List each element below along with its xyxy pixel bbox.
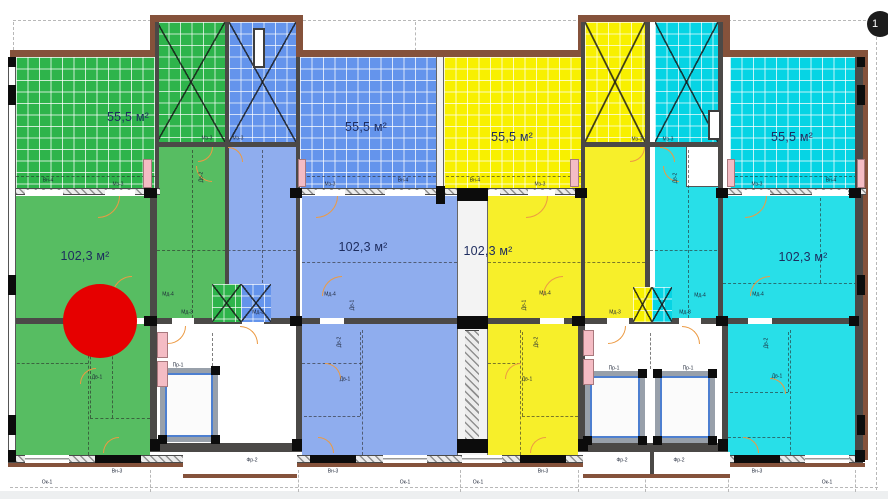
partition-line	[578, 470, 579, 492]
partition-line	[304, 416, 360, 417]
annotation-label: Вн-4	[470, 179, 481, 184]
partition-line	[522, 416, 578, 417]
partition-line	[460, 470, 461, 492]
annotation-label: Пр-1	[609, 367, 620, 372]
annotation-label: Мз-3	[233, 137, 244, 142]
partition-line	[855, 470, 856, 492]
terrace-area-label-green: 55,5 м²	[107, 110, 149, 124]
pink-window	[143, 159, 152, 188]
pink-window	[727, 159, 735, 187]
apartment-area-label-cyan: 102,3 м²	[778, 250, 827, 264]
pink-window	[857, 159, 865, 188]
elevator-corner-column	[638, 369, 647, 378]
partition-line	[788, 332, 789, 392]
exterior-wall	[8, 463, 865, 467]
wall	[296, 318, 302, 452]
column	[8, 85, 16, 105]
annotation-label: Фр-2	[673, 459, 684, 464]
annotation-label: Мз-3	[632, 138, 643, 143]
elevator-corner-column	[708, 436, 717, 445]
column	[290, 316, 302, 326]
annotation-label: Дв-1	[340, 378, 351, 383]
column	[734, 455, 780, 463]
balcony-door-frame	[708, 110, 721, 140]
exterior-wall	[863, 50, 868, 460]
elevator-corner-column	[211, 366, 220, 375]
selected-unit-marker[interactable]	[63, 284, 137, 358]
pink-window	[583, 359, 594, 385]
column	[144, 188, 157, 198]
column	[144, 316, 157, 326]
annotation-label: Вн-3	[112, 470, 123, 475]
wall	[855, 57, 863, 460]
terrace-x-yellow[interactable]	[585, 22, 645, 142]
column	[857, 85, 865, 105]
column	[520, 455, 566, 463]
elevator-corner-column	[583, 436, 592, 445]
annotation-label: Вн-4	[398, 179, 409, 184]
terrace-area-label-cyan: 55,5 м²	[771, 130, 813, 144]
wall	[650, 452, 654, 474]
column	[849, 316, 859, 326]
wall	[155, 22, 159, 188]
elevator-shaft	[585, 371, 645, 443]
terrace-yellow[interactable]	[444, 57, 581, 188]
door-arc	[240, 326, 258, 344]
terrace-area-label-yellow: 55,5 м²	[491, 130, 533, 144]
exterior-wall	[8, 57, 16, 460]
utility-room	[686, 145, 722, 187]
hatched-wall	[465, 330, 479, 440]
window-opening	[812, 190, 848, 196]
partition-line	[876, 22, 877, 490]
partition-line	[90, 418, 150, 419]
elevator-corner-column	[708, 369, 717, 378]
partition-line	[192, 150, 193, 318]
column	[849, 188, 861, 198]
window-opening	[320, 318, 344, 324]
terrace-area-label-blue: 55,5 м²	[345, 120, 387, 134]
column	[436, 186, 445, 204]
wall	[150, 443, 302, 452]
column	[572, 316, 585, 326]
partition-line	[13, 20, 876, 21]
elevator-corner-column	[638, 436, 647, 445]
annotation-label: Мз-3	[752, 183, 763, 188]
annotation-label: Дв-2	[338, 337, 343, 348]
column	[8, 415, 16, 435]
annotation-label: Мд-4	[162, 293, 174, 298]
annotation-label: Пр-1	[683, 367, 694, 372]
elevator-shaft	[160, 368, 218, 442]
annotation-label: Вн-3	[328, 470, 339, 475]
partition-line	[360, 332, 361, 416]
partition-line	[728, 437, 790, 438]
column	[855, 450, 865, 462]
wall	[585, 142, 722, 147]
door-arc	[608, 326, 626, 344]
bottom-margin	[0, 491, 888, 499]
window	[462, 455, 502, 463]
column	[290, 188, 302, 198]
annotation-label: Дв-1	[772, 375, 783, 380]
annotation-label: Дв-1	[523, 300, 528, 311]
window-opening	[607, 318, 629, 324]
annotation-label: Мд-4	[539, 292, 551, 297]
annotation-label: Фр-2	[616, 459, 627, 464]
wall	[581, 22, 585, 318]
partition-line	[302, 262, 457, 263]
annotation-label: Мд-3	[679, 311, 691, 316]
partition-line	[790, 330, 791, 455]
floor-plan: 55,5 м² 55,5 м² 55,5 м² 55,5 м² 102,3 м²…	[0, 0, 888, 499]
pink-window	[583, 330, 594, 356]
annotation-label: Ок-1	[400, 481, 411, 486]
window-opening	[385, 190, 425, 196]
exterior-wall	[296, 50, 585, 57]
partition-line	[446, 176, 581, 177]
column	[8, 275, 16, 295]
exterior-wall	[578, 15, 730, 22]
partition-line	[730, 176, 857, 177]
column	[8, 57, 16, 67]
elevator-corner-column	[653, 436, 662, 445]
window-opening	[748, 318, 772, 324]
annotation-label: Дв-2	[200, 172, 205, 183]
window-opening	[540, 318, 564, 324]
annotation-label: Мз-3	[325, 183, 336, 188]
annotation-label: Дв-1	[351, 300, 356, 311]
column	[716, 316, 728, 326]
column	[575, 188, 587, 198]
annotation-label: Дв-1	[522, 378, 533, 383]
elevator-shaft	[655, 371, 715, 443]
exterior-wall	[10, 50, 157, 57]
wall	[150, 318, 157, 452]
vestibule	[583, 452, 730, 478]
column	[457, 188, 488, 201]
window	[383, 455, 427, 463]
wall	[722, 318, 728, 452]
column	[457, 316, 488, 329]
partition-line	[362, 330, 363, 455]
wall	[718, 22, 723, 318]
annotation-label: Мд-4	[752, 293, 764, 298]
annotation-label: Мд-3	[181, 311, 193, 316]
terrace-x-green[interactable]	[157, 22, 225, 142]
column	[718, 439, 728, 451]
vestibule	[183, 452, 297, 478]
annotation-label: Мд-4	[694, 294, 706, 299]
column	[95, 455, 141, 463]
partition-line	[520, 330, 521, 455]
partition-line	[12, 363, 88, 364]
column	[857, 57, 865, 67]
annotation-label: Пр-1	[173, 364, 184, 369]
pink-window	[157, 332, 168, 358]
partition-line	[10, 487, 878, 488]
exterior-wall	[150, 15, 303, 22]
pink-window	[157, 361, 168, 387]
partition-line	[302, 176, 436, 177]
partition-line	[298, 470, 299, 492]
vent-shaft	[633, 287, 652, 322]
terrace-cyan[interactable]	[730, 57, 857, 188]
floor-number-label: 1	[872, 18, 878, 30]
annotation-label: Дв-2	[535, 337, 540, 348]
apartment-area-label-yellow: 102,3 м²	[463, 244, 512, 258]
window-opening	[172, 318, 194, 324]
partition-line	[650, 250, 722, 251]
pink-window	[298, 159, 306, 187]
floor-number-badge[interactable]: 1	[867, 11, 888, 37]
wall	[436, 57, 444, 188]
vent-shaft	[652, 287, 672, 322]
annotation-label: Ок-1	[473, 481, 484, 486]
elevator-corner-column	[211, 435, 220, 444]
vent-shaft	[241, 284, 271, 322]
door-arc	[682, 326, 700, 344]
column	[857, 415, 865, 435]
annotation-label: Дв-1	[92, 376, 103, 381]
apartment-area-label-blue: 102,3 м²	[338, 240, 387, 254]
annotation-label: Мд-4	[324, 293, 336, 298]
partition-line	[16, 176, 155, 177]
annotation-label: Ок-1	[42, 481, 53, 486]
annotation-label: Дв-2	[765, 338, 770, 349]
annotation-label: Мз-3	[202, 137, 213, 142]
annotation-label: Дв-2	[674, 173, 679, 184]
column	[8, 450, 16, 462]
wall	[645, 22, 650, 318]
pink-window	[570, 159, 579, 187]
elevator-corner-column	[653, 369, 662, 378]
wall	[150, 190, 157, 318]
window	[25, 455, 69, 463]
annotation-label: Ок-1	[822, 481, 833, 486]
partition-line	[723, 283, 857, 284]
annotation-label: Мд-3	[252, 311, 264, 316]
window-opening	[679, 318, 701, 324]
exterior-wall	[723, 50, 866, 57]
column	[457, 439, 488, 453]
annotation-label: Мд-3	[609, 311, 621, 316]
wall	[225, 22, 229, 318]
partition-line	[650, 333, 651, 369]
column	[310, 455, 356, 463]
partition-line	[688, 150, 689, 318]
annotation-label: Фр-2	[246, 459, 257, 464]
vent-shaft	[212, 284, 241, 322]
annotation-label: Мз-3	[113, 183, 124, 188]
annotation-label: Вн-4	[43, 179, 54, 184]
annotation-label: Вн-4	[826, 179, 837, 184]
partition-line	[150, 470, 151, 492]
apartment-area-label-green: 102,3 м²	[60, 249, 109, 263]
door-arc	[168, 326, 186, 344]
annotation-label: Мз-3	[663, 138, 674, 143]
column	[857, 275, 865, 295]
partition-line	[522, 332, 523, 416]
window	[805, 455, 849, 463]
partition-line	[488, 262, 645, 263]
column	[716, 188, 728, 198]
window-opening	[25, 190, 63, 196]
annotation-label: Вн-3	[752, 470, 763, 475]
annotation-label: Мз-3	[535, 183, 546, 188]
annotation-label: Вн-3	[538, 470, 549, 475]
partition-line	[820, 198, 821, 283]
balcony-door-frame	[253, 28, 265, 68]
column	[292, 439, 302, 451]
partition-line	[212, 333, 213, 366]
elevator-corner-column	[158, 435, 167, 444]
